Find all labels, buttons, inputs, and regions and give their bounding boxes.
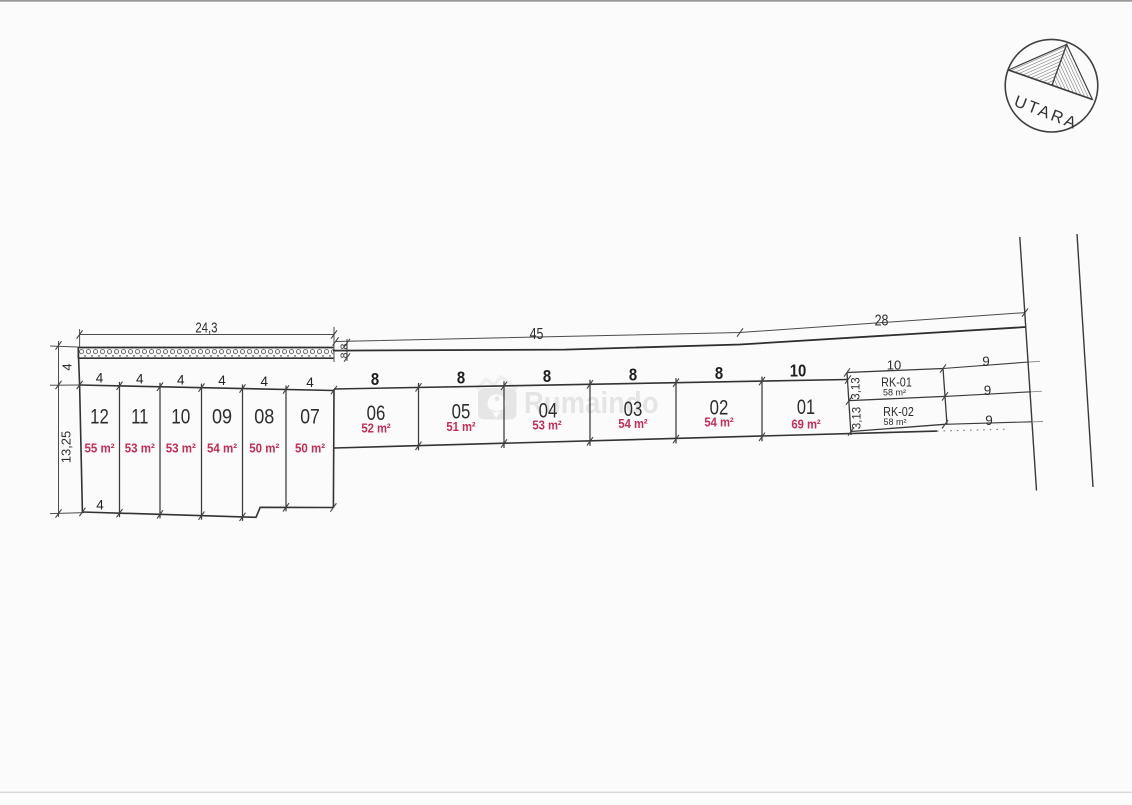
svg-text:9: 9 xyxy=(982,354,990,369)
svg-text:10: 10 xyxy=(790,361,807,380)
svg-text:11: 11 xyxy=(131,406,148,429)
svg-text:69 m²: 69 m² xyxy=(791,417,820,432)
svg-text:4: 4 xyxy=(136,371,144,386)
svg-text:3,13: 3,13 xyxy=(851,377,863,399)
svg-text:08: 08 xyxy=(254,405,274,429)
svg-text:50 m²: 50 m² xyxy=(295,441,325,456)
svg-text:4: 4 xyxy=(96,371,104,386)
svg-text:9: 9 xyxy=(984,383,992,398)
svg-text:54 m²: 54 m² xyxy=(704,415,733,430)
svg-text:01: 01 xyxy=(797,395,815,418)
svg-text:54 m²: 54 m² xyxy=(618,416,647,431)
svg-text:8: 8 xyxy=(543,367,551,386)
svg-text:9: 9 xyxy=(985,413,993,428)
svg-text:4: 4 xyxy=(261,374,269,389)
svg-text:4: 4 xyxy=(218,373,226,388)
svg-text:4: 4 xyxy=(96,498,104,513)
svg-text:52 m²: 52 m² xyxy=(361,421,390,436)
svg-text:8: 8 xyxy=(629,365,637,384)
svg-text:13,25: 13,25 xyxy=(59,431,74,464)
svg-text:50 m²: 50 m² xyxy=(249,441,279,456)
svg-text:4: 4 xyxy=(306,375,314,390)
svg-text:4: 4 xyxy=(60,363,75,370)
svg-text:8: 8 xyxy=(457,368,465,387)
svg-text:53 m²: 53 m² xyxy=(532,418,561,433)
svg-text:45: 45 xyxy=(530,326,544,344)
svg-text:51 m²: 51 m² xyxy=(446,419,475,434)
svg-text:28: 28 xyxy=(875,312,889,330)
svg-text:53 m²: 53 m² xyxy=(166,441,196,456)
svg-text:58 m²: 58 m² xyxy=(883,388,906,398)
svg-text:4: 4 xyxy=(177,372,185,387)
svg-text:10: 10 xyxy=(171,405,190,429)
svg-text:54 m²: 54 m² xyxy=(207,441,237,456)
svg-text:12: 12 xyxy=(90,406,109,429)
svg-text:53 m²: 53 m² xyxy=(125,441,155,456)
svg-text:8: 8 xyxy=(371,370,379,389)
svg-text:58 m²: 58 m² xyxy=(883,417,906,427)
svg-text:55 m²: 55 m² xyxy=(84,441,114,456)
svg-text:3,13: 3,13 xyxy=(852,407,864,429)
svg-text:09: 09 xyxy=(212,405,232,429)
svg-text:8: 8 xyxy=(715,364,723,383)
svg-text:07: 07 xyxy=(300,405,320,429)
svg-text:10: 10 xyxy=(887,358,901,373)
svg-text:24,3: 24,3 xyxy=(195,319,217,336)
